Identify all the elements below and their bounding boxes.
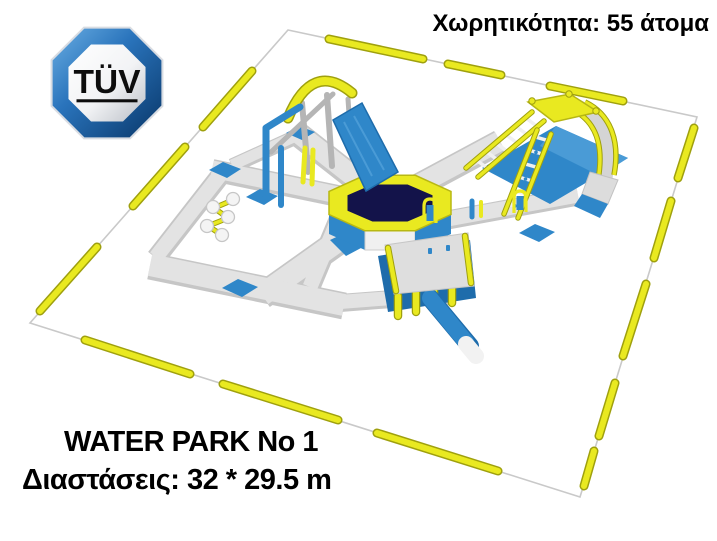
park-title: WATER PARK No 1: [64, 426, 318, 459]
climbing-platform: [378, 233, 476, 356]
trampoline-mat: [348, 185, 433, 222]
product-sheet: TÜV Χωρητικότητα: 55 άτομα WATER PARK No…: [0, 0, 717, 541]
dimensions-label: Διαστάσεις: 32 * 29.5 m: [22, 464, 331, 497]
badge-text: TÜV: [73, 64, 141, 101]
badge-underline: [77, 99, 138, 102]
slide-tower: [466, 91, 628, 218]
capacity-label: Χωρητικότητα: 55 άτομα: [432, 10, 709, 38]
tuv-certification-badge: TÜV: [44, 22, 170, 144]
